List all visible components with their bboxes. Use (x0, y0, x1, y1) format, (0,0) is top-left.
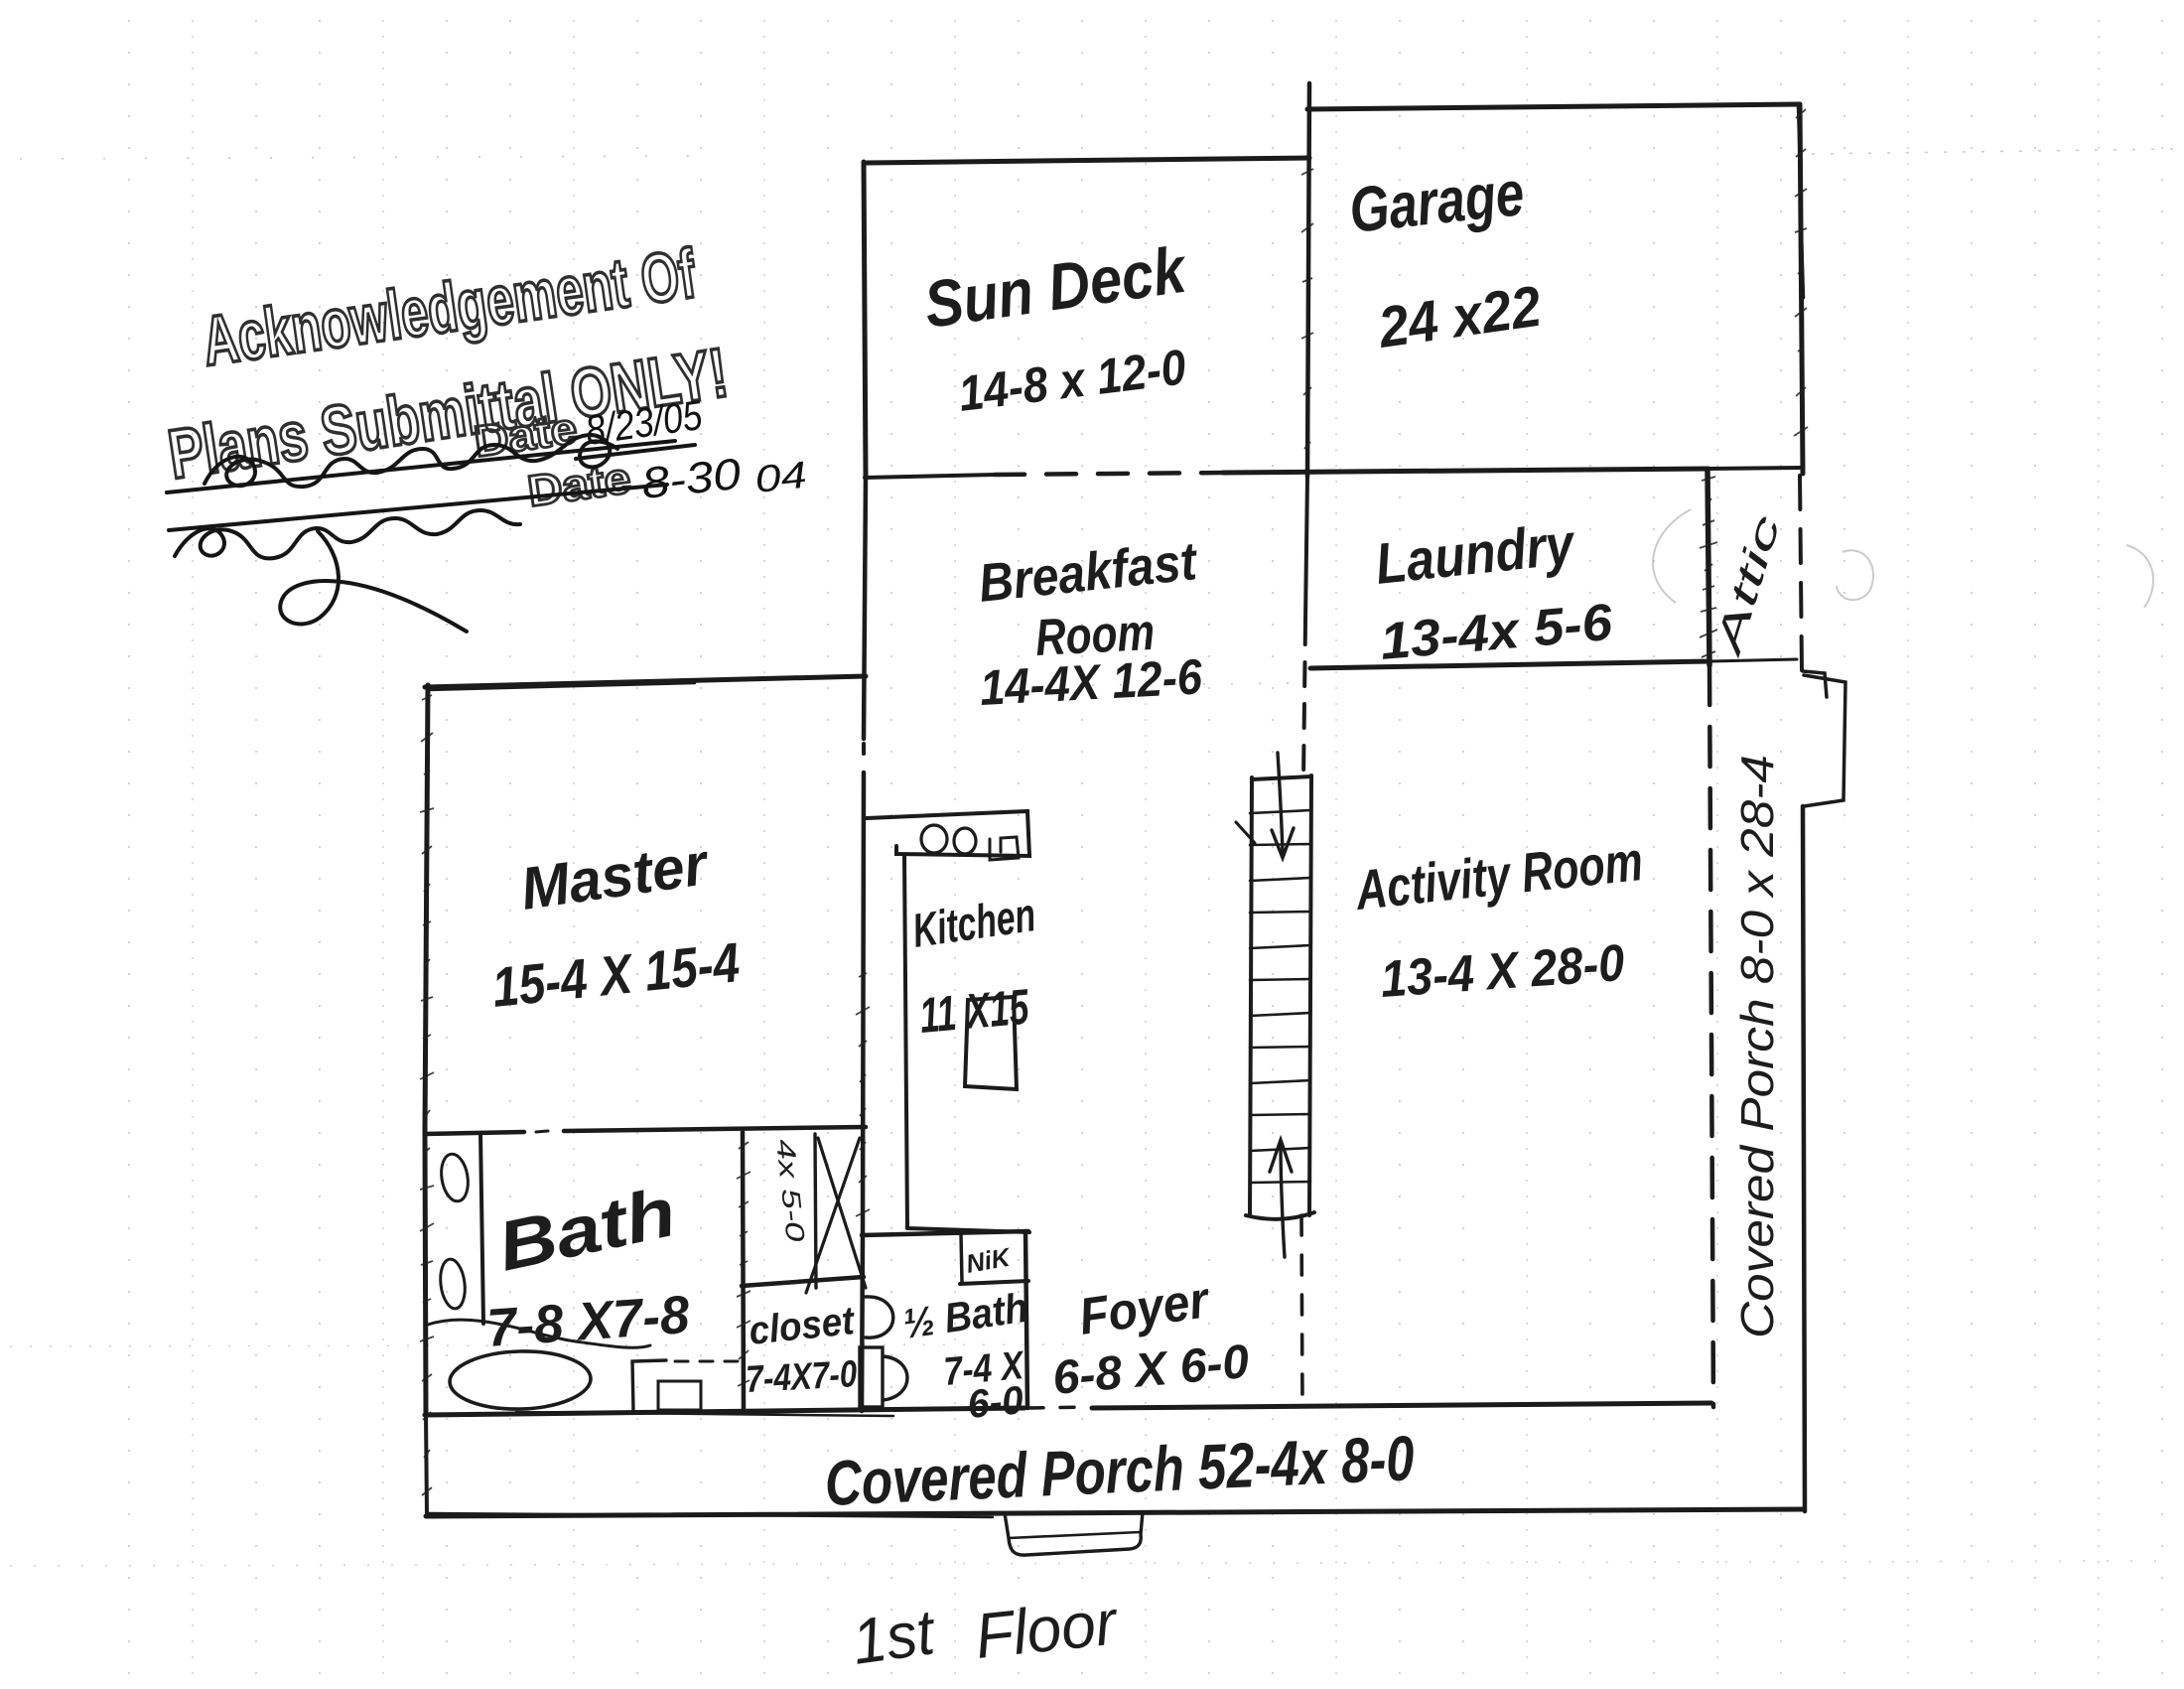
svg-text:13-4 X 28-0: 13-4 X 28-0 (1379, 934, 1627, 1009)
svg-text:Garage: Garage (1346, 157, 1528, 246)
svg-text:14-4X 12-6: 14-4X 12-6 (979, 648, 1205, 716)
svg-text:6-0: 6-0 (966, 1378, 1025, 1427)
svg-text:6-8 X 6-0: 6-8 X 6-0 (1050, 1336, 1251, 1405)
svg-text:04: 04 (753, 455, 809, 501)
svg-text:Bath: Bath (491, 1173, 682, 1286)
svg-text:NiK: NiK (964, 1241, 1015, 1279)
svg-text:Covered Porch 52-4x 8-0: Covered Porch 52-4x 8-0 (823, 1422, 1416, 1519)
svg-text:Activity Room: Activity Room (1351, 829, 1646, 921)
svg-text:7-4X7-0: 7-4X7-0 (745, 1353, 858, 1401)
svg-text:Floor: Floor (972, 1586, 1122, 1672)
svg-text:Laundry: Laundry (1373, 511, 1579, 597)
svg-text:1st: 1st (848, 1596, 940, 1678)
svg-text:closet: closet (747, 1299, 858, 1353)
svg-text:Date: Date (525, 454, 634, 516)
svg-text:4x 5-0: 4x 5-0 (770, 1137, 811, 1243)
svg-text:Attic: Attic (1706, 511, 1789, 662)
svg-text:Breakfast: Breakfast (976, 531, 1201, 614)
svg-text:8-30: 8-30 (639, 450, 744, 508)
svg-text:Covered Porch 8-0 x 28-4: Covered Porch 8-0 x 28-4 (1731, 755, 1783, 1338)
svg-text:½ Bath: ½ Bath (900, 1284, 1030, 1347)
svg-text:24 x22: 24 x22 (1374, 274, 1545, 360)
svg-text:Kitchen: Kitchen (909, 889, 1038, 958)
svg-text:13-4x 5-6: 13-4x 5-6 (1378, 594, 1615, 671)
svg-text:Master: Master (516, 830, 714, 922)
svg-text:Sun Deck: Sun Deck (920, 231, 1193, 341)
svg-text:15-4 X 15-4: 15-4 X 15-4 (489, 930, 743, 1019)
svg-text:14-8 x 12-0: 14-8 x 12-0 (956, 339, 1189, 422)
svg-text:7-8 X7-8: 7-8 X7-8 (485, 1285, 692, 1358)
svg-text:Foyer: Foyer (1076, 1271, 1214, 1346)
svg-text:11 X15: 11 X15 (917, 979, 1031, 1044)
